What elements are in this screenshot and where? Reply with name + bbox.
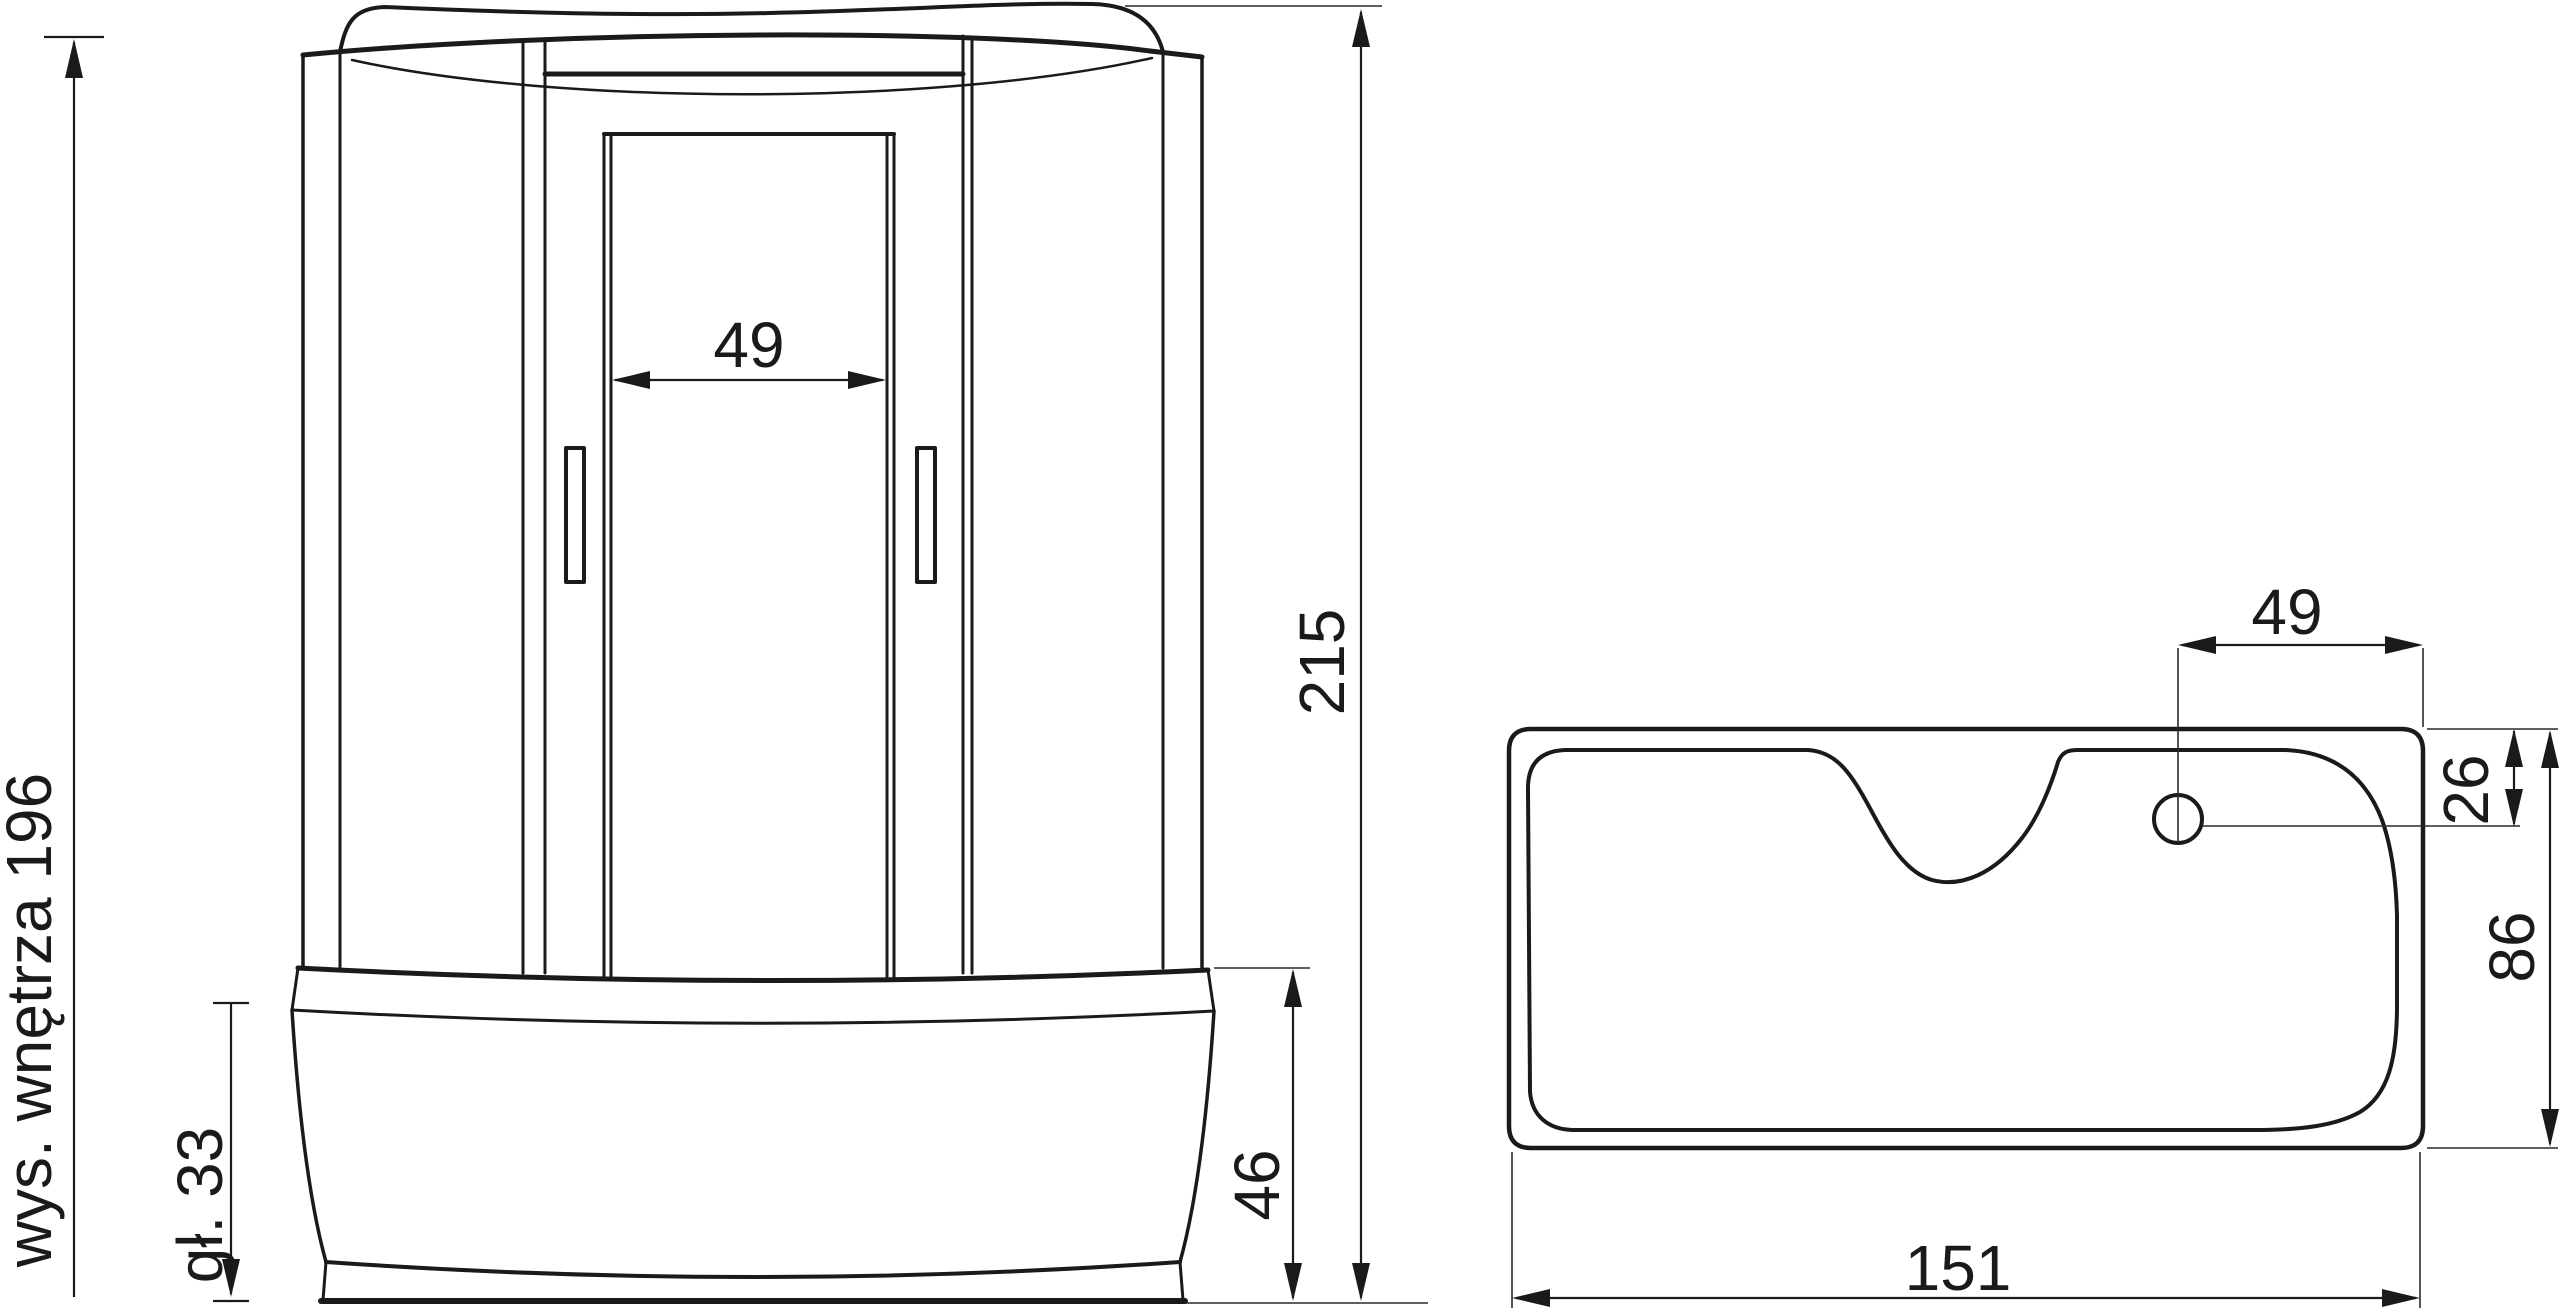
- tray-height-label: 46: [1221, 1149, 1293, 1220]
- tub-rim-top: [298, 968, 1208, 981]
- arrow-right-icon: [2385, 636, 2423, 654]
- dimension-basin-depth: gł. 33: [164, 1003, 249, 1301]
- arrow-up-icon: [2505, 729, 2523, 767]
- total-height-label: 215: [1286, 609, 1358, 716]
- door-handle-left: [566, 448, 584, 582]
- arrow-down-icon: [1352, 1263, 1370, 1301]
- arrow-left-icon: [2178, 636, 2216, 654]
- tub-base-right-edge: [1180, 1262, 1183, 1300]
- tray-outer-contour: [1509, 729, 2423, 1148]
- interior-height-label: wys. wnętrza 196: [0, 773, 65, 1268]
- arrow-down-icon: [1284, 1263, 1302, 1301]
- door-handle-right: [917, 448, 935, 582]
- tray-depth-label: gł. 33: [164, 1127, 236, 1284]
- tub-rim-bottom: [292, 1010, 1214, 1023]
- tub-base-left-edge: [323, 1262, 326, 1300]
- arrow-left-icon: [612, 371, 650, 389]
- cabin-top-edge: [303, 35, 1202, 57]
- drawing-canvas: 49 wys. wnętrza 196 gł. 33 46 215: [0, 0, 2560, 1314]
- tub-rim-left-end: [292, 968, 298, 1010]
- top-hole-offset-depth-label: 26: [2430, 754, 2502, 825]
- top-hole-offset-width-label: 49: [2251, 576, 2322, 648]
- top-width-label: 151: [1905, 1232, 2012, 1304]
- arrow-down-icon: [2505, 789, 2523, 827]
- front-view-shower-cabin: [292, 4, 1428, 1303]
- top-depth-label: 86: [2476, 911, 2548, 982]
- front-opening-width-label: 49: [713, 309, 784, 381]
- dimension-top-opening-width: 49: [2178, 576, 2423, 843]
- top-view-shower-tray: [1509, 729, 2423, 1148]
- dimension-interior-height: wys. wnętrza 196: [0, 37, 104, 1297]
- arrow-up-icon: [2541, 730, 2559, 768]
- tub-apron-right-edge: [1180, 1011, 1214, 1262]
- arrow-down-icon: [2541, 1109, 2559, 1147]
- arrow-up-icon: [1352, 9, 1370, 47]
- arrow-left-icon: [1512, 1289, 1550, 1307]
- tub-apron-left-edge: [292, 1010, 326, 1262]
- arrow-up-icon: [1284, 969, 1302, 1007]
- arrow-right-icon: [848, 371, 886, 389]
- tray-inner-contour: [1528, 750, 2397, 1130]
- tub-apron-bottom-edge: [326, 1262, 1180, 1277]
- technical-drawing: 49 wys. wnętrza 196 gł. 33 46 215: [0, 0, 2560, 1314]
- dimension-door-opening: 49: [612, 309, 886, 389]
- dimension-tray-width: 151: [1512, 1152, 2420, 1308]
- tub-rim-right-end: [1208, 970, 1214, 1011]
- arrow-right-icon: [2382, 1289, 2420, 1307]
- dimension-basin-height: 46: [1214, 968, 1310, 1301]
- arrow-up-icon: [65, 39, 83, 78]
